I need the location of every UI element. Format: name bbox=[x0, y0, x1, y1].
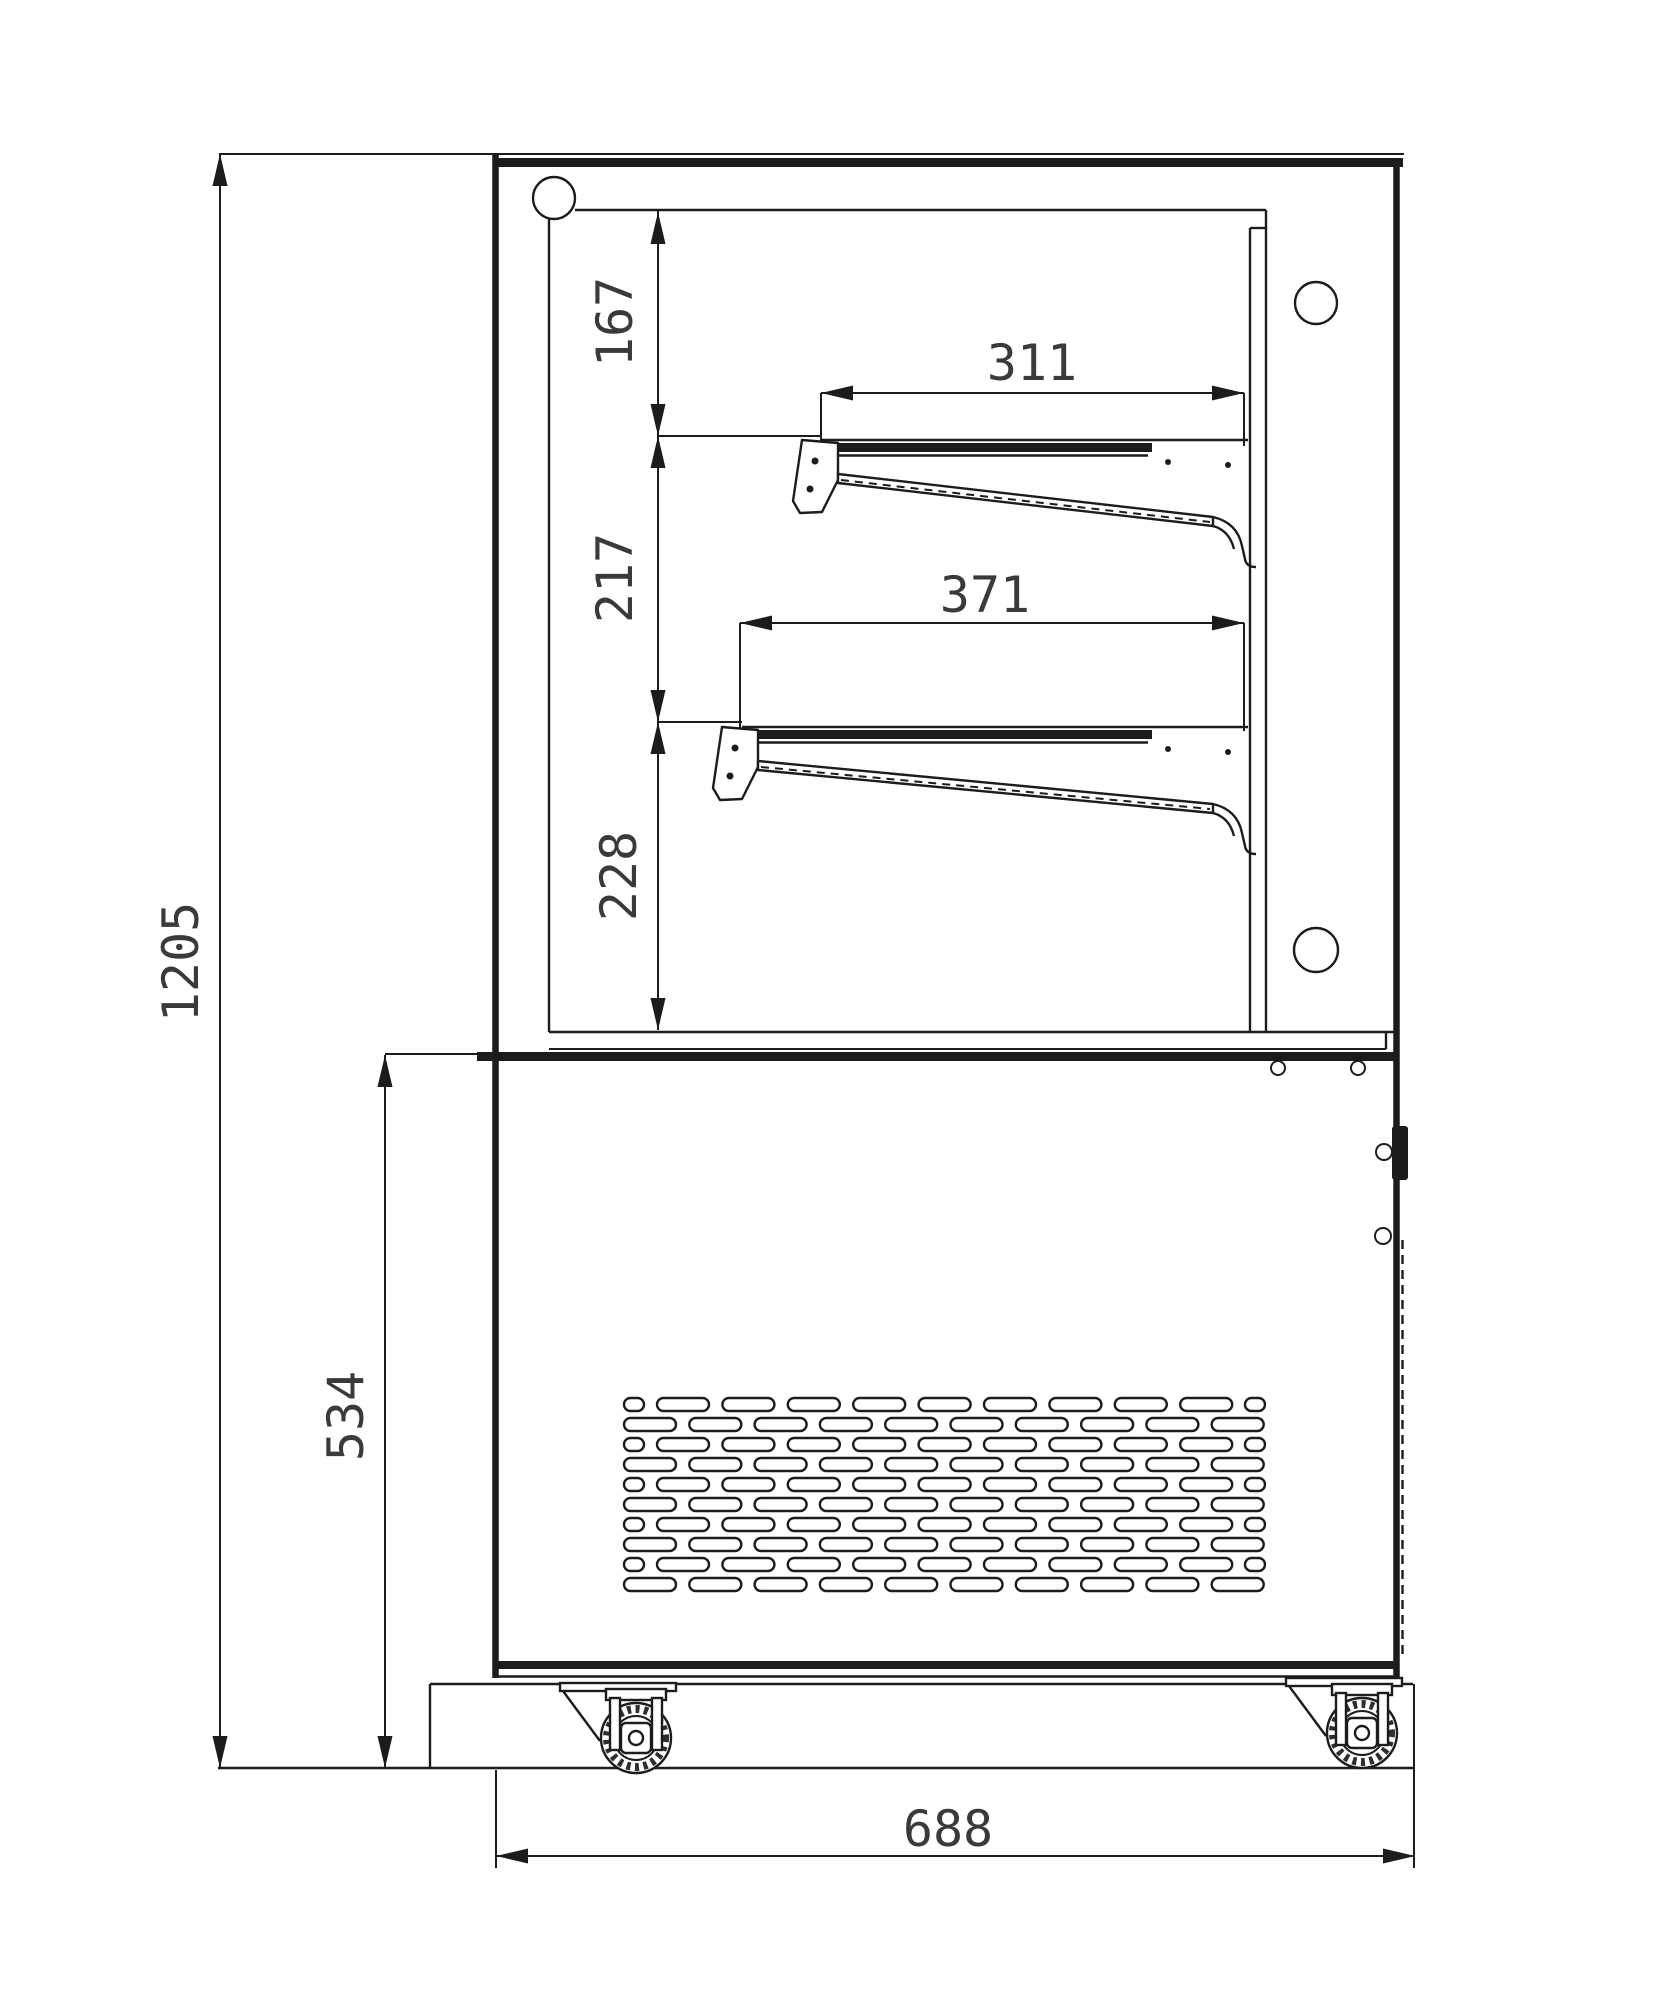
vent-slot bbox=[1016, 1498, 1068, 1511]
vent-slot bbox=[984, 1398, 1036, 1411]
dim-label-upper-shelf: 311 bbox=[987, 334, 1077, 392]
vent-slot bbox=[1180, 1398, 1232, 1411]
vent-slot bbox=[1212, 1418, 1264, 1431]
vent-slot bbox=[1146, 1578, 1198, 1591]
vent-slot bbox=[624, 1578, 676, 1591]
lower-shelf-mat-bar bbox=[750, 730, 1152, 739]
vent-slot bbox=[1049, 1398, 1101, 1411]
vent-slot bbox=[1081, 1498, 1133, 1511]
arrow-left-icon bbox=[496, 1849, 528, 1864]
upper-shelf-mat-bar bbox=[830, 443, 1152, 452]
screw-circle bbox=[1271, 1061, 1285, 1075]
shelf-screw-dot bbox=[1225, 749, 1231, 755]
vent-slot bbox=[951, 1578, 1003, 1591]
arrow-left-icon bbox=[740, 616, 772, 631]
vent-slot bbox=[624, 1538, 676, 1551]
base-frame bbox=[218, 1684, 1414, 1768]
vent-slot bbox=[689, 1578, 741, 1591]
vent-slot bbox=[984, 1558, 1036, 1571]
vent-slot bbox=[984, 1478, 1036, 1491]
vent-slot bbox=[1115, 1478, 1167, 1491]
vent-slot bbox=[1115, 1518, 1167, 1531]
vent-slot bbox=[1049, 1558, 1101, 1571]
dimension-overall-height: 1205 bbox=[152, 154, 228, 1768]
vent-slot bbox=[1081, 1538, 1133, 1551]
bracket-hole bbox=[807, 486, 814, 493]
vent-slot bbox=[624, 1438, 644, 1451]
vent-slot bbox=[689, 1538, 741, 1551]
lower-cabinet bbox=[497, 1061, 1408, 1677]
vent-slot bbox=[984, 1518, 1036, 1531]
dim-label-base-height: 534 bbox=[317, 1371, 375, 1461]
bracket-hole bbox=[732, 745, 739, 752]
vent-slot bbox=[657, 1558, 709, 1571]
vent-slot bbox=[755, 1538, 807, 1551]
vent-slot bbox=[1212, 1458, 1264, 1471]
vent-slot bbox=[1146, 1538, 1198, 1551]
arrow-up-icon bbox=[651, 212, 666, 244]
vent-slot bbox=[1081, 1418, 1133, 1431]
vent-slot bbox=[1180, 1518, 1232, 1531]
vent-slot bbox=[1016, 1578, 1068, 1591]
vent-slot bbox=[951, 1418, 1003, 1431]
shelf-screw-dot bbox=[1165, 459, 1171, 465]
vent-slot bbox=[919, 1438, 971, 1451]
vent-slot bbox=[885, 1458, 937, 1471]
vent-slot bbox=[1049, 1478, 1101, 1491]
dimension-lower-shelf: 371 bbox=[740, 566, 1244, 731]
caster-bracket-slant bbox=[1289, 1686, 1326, 1736]
screw-hole-top-right bbox=[1295, 282, 1337, 324]
vent-slot bbox=[1245, 1398, 1265, 1411]
vent-slot bbox=[1081, 1578, 1133, 1591]
door-hinge-block bbox=[1392, 1126, 1408, 1180]
vent-slot bbox=[919, 1478, 971, 1491]
vent-slot bbox=[951, 1458, 1003, 1471]
vent-slot bbox=[919, 1518, 971, 1531]
caster-bracket-slant bbox=[563, 1691, 600, 1741]
vent-slot bbox=[624, 1558, 644, 1571]
vent-slot bbox=[788, 1438, 840, 1451]
arrow-down-icon bbox=[378, 1736, 393, 1768]
vent-slot bbox=[1180, 1438, 1232, 1451]
arrow-down-icon bbox=[651, 998, 666, 1030]
vent-slot bbox=[1115, 1438, 1167, 1451]
vent-slot bbox=[788, 1558, 840, 1571]
lower-shelf-left-bracket bbox=[713, 727, 758, 800]
vent-slot bbox=[722, 1518, 774, 1531]
display-case-side-elevation: 1205 534 167 217 228 311 371 bbox=[0, 0, 1668, 2000]
vent-slot bbox=[788, 1478, 840, 1491]
technical-drawing-page: 1205 534 167 217 228 311 371 bbox=[0, 0, 1668, 2000]
arrow-right-icon bbox=[1212, 386, 1244, 401]
vent-slot bbox=[820, 1578, 872, 1591]
wheel-axle-hole bbox=[1355, 1726, 1369, 1740]
vent-slot bbox=[951, 1498, 1003, 1511]
screw-hole-bottom-right bbox=[1294, 928, 1338, 972]
dimension-upper-shelf: 311 bbox=[821, 334, 1244, 446]
vent-slot bbox=[624, 1478, 644, 1491]
vent-slot bbox=[689, 1418, 741, 1431]
vent-slot bbox=[624, 1398, 644, 1411]
upper-arm-right-foot-inner bbox=[1213, 526, 1234, 549]
vent-slot bbox=[788, 1518, 840, 1531]
dim-label-bottom-clearance: 228 bbox=[590, 831, 648, 921]
vent-slot bbox=[755, 1578, 807, 1591]
arrow-left-icon bbox=[821, 386, 853, 401]
vent-slot bbox=[624, 1498, 676, 1511]
vent-slot bbox=[1049, 1518, 1101, 1531]
top-panel-bar bbox=[495, 158, 1403, 167]
dim-label-overall-width: 688 bbox=[903, 1800, 993, 1858]
arrow-down-icon bbox=[651, 404, 666, 436]
vent-slot bbox=[853, 1518, 905, 1531]
arrow-up-icon bbox=[651, 436, 666, 468]
vent-slot bbox=[722, 1398, 774, 1411]
vent-slot bbox=[885, 1418, 937, 1431]
vent-slot bbox=[624, 1458, 676, 1471]
vent-slot bbox=[853, 1398, 905, 1411]
vent-slot bbox=[820, 1538, 872, 1551]
dim-label-top-clearance: 167 bbox=[586, 277, 644, 367]
vent-slot bbox=[624, 1418, 676, 1431]
caster-fork-left bbox=[610, 1698, 620, 1750]
dimension-base-height: 534 bbox=[317, 1054, 477, 1768]
vent-slot bbox=[885, 1578, 937, 1591]
hinge-screw-circle bbox=[1375, 1228, 1391, 1244]
vent-slot bbox=[1016, 1458, 1068, 1471]
vent-slot bbox=[853, 1438, 905, 1451]
vent-slot bbox=[820, 1498, 872, 1511]
lower-shelf bbox=[658, 722, 1256, 854]
arrow-up-icon bbox=[213, 154, 228, 186]
vent-slot bbox=[984, 1438, 1036, 1451]
vent-slot bbox=[1245, 1558, 1265, 1571]
arrow-down-icon bbox=[213, 1736, 228, 1768]
ventilation-grille bbox=[624, 1398, 1265, 1591]
vent-slot bbox=[722, 1478, 774, 1491]
dim-label-lower-shelf: 371 bbox=[940, 566, 1030, 624]
dim-label-mid-clearance: 217 bbox=[586, 533, 644, 623]
dimension-chain-vertical: 167 217 228 bbox=[586, 211, 666, 1030]
vent-slot bbox=[885, 1498, 937, 1511]
vent-slot bbox=[657, 1438, 709, 1451]
vent-slot bbox=[919, 1558, 971, 1571]
arrow-up-icon bbox=[651, 722, 666, 754]
vent-slot bbox=[1212, 1498, 1264, 1511]
upper-shelf-left-bracket bbox=[793, 440, 838, 513]
vent-slot bbox=[1245, 1518, 1265, 1531]
hinge-screw-circle bbox=[1376, 1144, 1392, 1160]
vent-slot bbox=[722, 1558, 774, 1571]
vent-slot bbox=[885, 1538, 937, 1551]
vent-slot bbox=[689, 1498, 741, 1511]
vent-slot bbox=[1146, 1498, 1198, 1511]
cabinet-outline bbox=[219, 154, 1404, 1678]
bracket-hole bbox=[812, 458, 819, 465]
vent-slot bbox=[1180, 1558, 1232, 1571]
screw-circle bbox=[1351, 1061, 1365, 1075]
caster-right bbox=[1286, 1678, 1402, 1768]
vent-slot bbox=[919, 1398, 971, 1411]
vent-slot bbox=[624, 1518, 644, 1531]
vent-slot bbox=[1245, 1438, 1265, 1451]
vent-slot bbox=[1146, 1458, 1198, 1471]
vent-slot bbox=[788, 1398, 840, 1411]
vent-slot bbox=[1245, 1478, 1265, 1491]
vent-slot bbox=[1115, 1558, 1167, 1571]
vent-slot bbox=[722, 1438, 774, 1451]
dim-label-overall-height: 1205 bbox=[152, 902, 210, 1022]
vent-slot bbox=[853, 1478, 905, 1491]
vent-slot bbox=[657, 1478, 709, 1491]
arrow-right-icon bbox=[1212, 616, 1244, 631]
vent-slot bbox=[951, 1538, 1003, 1551]
shelf-screw-dot bbox=[1225, 462, 1231, 468]
vent-slot bbox=[853, 1558, 905, 1571]
vent-slot bbox=[820, 1418, 872, 1431]
vent-slot bbox=[689, 1458, 741, 1471]
arrow-up-icon bbox=[378, 1055, 393, 1087]
arrow-right-icon bbox=[1383, 1849, 1415, 1864]
lower-arm-right-foot-inner bbox=[1213, 813, 1234, 836]
caster-fork-right bbox=[1378, 1693, 1388, 1745]
vent-slot bbox=[820, 1458, 872, 1471]
vent-slot bbox=[657, 1398, 709, 1411]
caster-fork-right bbox=[652, 1698, 662, 1750]
arrow-down-icon bbox=[651, 690, 666, 722]
vent-slot bbox=[1212, 1538, 1264, 1551]
vent-slot bbox=[1016, 1418, 1068, 1431]
upper-shelf bbox=[658, 436, 1256, 567]
vent-slot bbox=[755, 1418, 807, 1431]
vent-slot bbox=[1180, 1478, 1232, 1491]
bracket-hole bbox=[727, 773, 734, 780]
vent-slot bbox=[755, 1458, 807, 1471]
vent-slot bbox=[1212, 1578, 1264, 1591]
vent-slot bbox=[1016, 1538, 1068, 1551]
caster-left bbox=[560, 1683, 676, 1773]
screw-hole-top-left bbox=[533, 177, 575, 219]
vent-slot bbox=[1049, 1438, 1101, 1451]
vent-slot bbox=[755, 1498, 807, 1511]
wheel-axle-hole bbox=[629, 1731, 643, 1745]
vent-slot bbox=[657, 1518, 709, 1531]
vent-slot bbox=[1081, 1458, 1133, 1471]
vent-slot bbox=[1115, 1398, 1167, 1411]
vent-slot bbox=[1146, 1418, 1198, 1431]
shelf-screw-dot bbox=[1165, 746, 1171, 752]
caster-fork-left bbox=[1336, 1693, 1346, 1745]
